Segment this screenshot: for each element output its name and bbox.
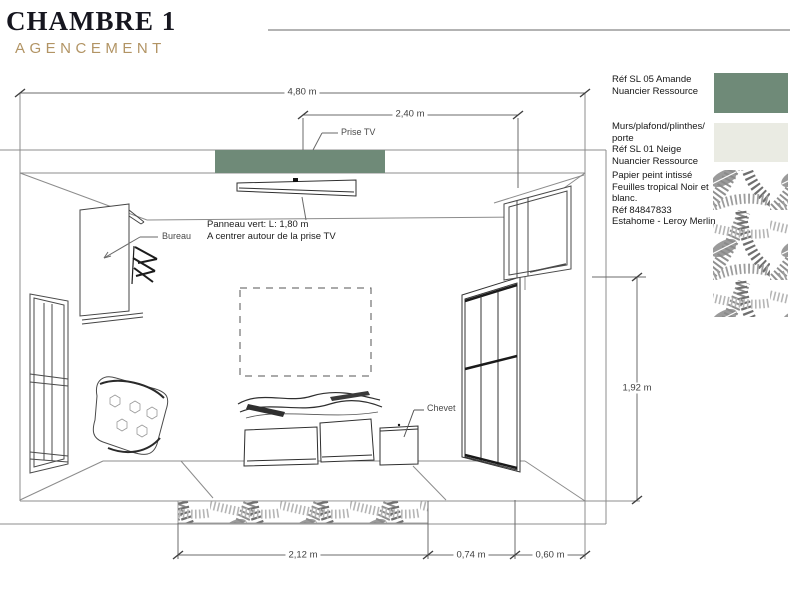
room-drawing (0, 0, 790, 592)
bed-sketch (238, 288, 382, 466)
tv-panel (237, 178, 356, 220)
window-left (30, 294, 68, 473)
rug-tropical (178, 501, 428, 523)
desk-sketch (80, 204, 144, 324)
wallpaper-swatch (713, 170, 788, 317)
agencement-page: CHAMBRE 1 AGENCEMENT 4,80 m 2,40 m 1,92 … (0, 0, 790, 592)
green-panel (215, 150, 385, 173)
chair-sketch (132, 246, 157, 284)
armchair-sketch (93, 377, 167, 455)
wardrobe-sketch (462, 277, 520, 472)
nightstand-sketch (380, 410, 424, 465)
headboard-dashed-outline (240, 288, 371, 376)
window-right (504, 186, 571, 280)
